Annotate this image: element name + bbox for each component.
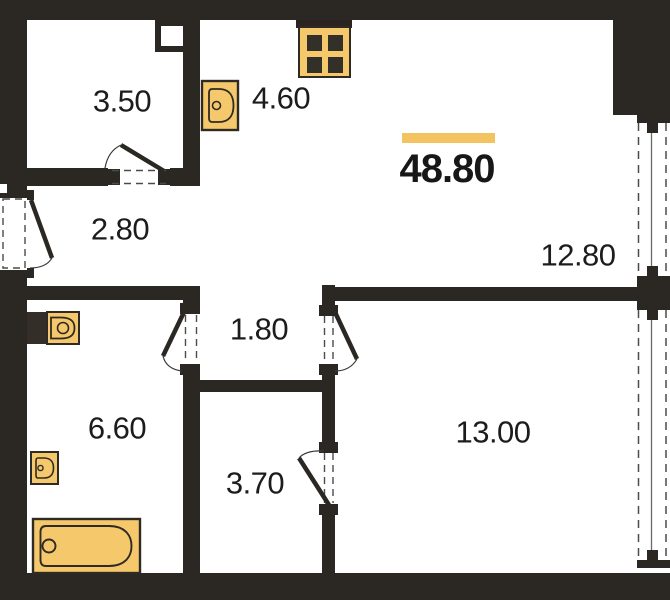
total-area-label: 48.80: [399, 149, 494, 189]
room-area-label-inner-hall: 1.80: [230, 314, 288, 345]
door-leaf: [163, 310, 185, 356]
bathtub-icon: [33, 519, 140, 573]
living-window: [639, 123, 667, 276]
room-area-label-closet: 3.70: [226, 468, 284, 499]
bedroom-door: [325, 310, 358, 371]
door-swing-arc: [163, 356, 182, 371]
stove-icon: [296, 20, 352, 77]
door-leaf: [31, 200, 52, 258]
room-area-label-bathroom: 6.60: [88, 413, 146, 444]
entrance-door: [3, 199, 52, 268]
washbasin-icon: [31, 452, 58, 484]
door-swing-arc: [105, 145, 121, 168]
door-leaf: [121, 145, 164, 171]
room-area-label-kitchen: 4.60: [252, 83, 310, 114]
closet-door: [299, 451, 333, 505]
bathroom-door: [163, 310, 197, 371]
door-leaf: [334, 310, 357, 359]
door-swing-arc: [299, 451, 324, 458]
room-area-label-living: 12.80: [540, 240, 615, 271]
door-swing-arc: [335, 359, 357, 371]
kitchen-sink-icon: [202, 81, 238, 130]
total-area-accent-bar: [402, 133, 495, 143]
floor-plan: 3.50 4.60 2.80 12.80 1.80 6.60 3.70 13.0…: [0, 0, 670, 600]
room-area-label-bedroom: 13.00: [455, 417, 530, 448]
room-area-label-storage: 3.50: [93, 86, 151, 117]
door-swing-arc: [30, 258, 52, 268]
toilet-icon: [27, 312, 79, 344]
room-area-label-hallway: 2.80: [91, 214, 149, 245]
storage-door: [105, 145, 166, 184]
bedroom-window: [639, 310, 667, 560]
